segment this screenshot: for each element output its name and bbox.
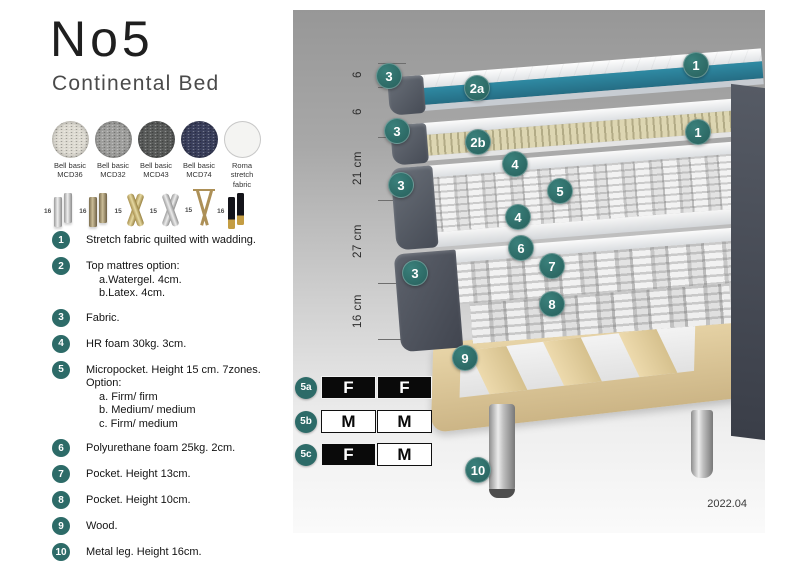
fabric-swatch[interactable]: Bell basicMCD43 [136, 121, 176, 189]
diagram-marker[interactable]: 5 [547, 178, 573, 204]
fabric-swatch-circle[interactable] [181, 121, 218, 158]
fabric-swatch-label: Roma [232, 161, 252, 170]
legend-number-badge: 8 [52, 491, 70, 509]
leg-height-label: 15 [150, 208, 157, 215]
legend-line: b. Medium/ medium [99, 404, 294, 418]
legend-item-8: 8 Pocket. Height 10cm. [52, 491, 294, 509]
legend-item-6: 6 Polyurethane foam 25kg. 2cm. [52, 439, 294, 457]
diagram-marker[interactable]: 3 [388, 172, 414, 198]
legend-number-badge: 4 [52, 335, 70, 353]
firmness-table-5a: 5a F F [295, 376, 432, 399]
leg-height-label: 15 [114, 208, 121, 215]
legend-item-5: 5 Micropocket. Height 15 cm. 7zones. Opt… [52, 361, 294, 432]
diagram-marker[interactable]: 3 [376, 63, 402, 89]
legend-item-1: 1 Stretch fabric quilted with wadding. [52, 231, 294, 249]
legend-line: Polyurethane foam 25kg. 2cm. [86, 442, 235, 456]
legend-line: a. Firm/ firm [99, 391, 294, 405]
page-title: No5 [50, 10, 154, 68]
leg-option[interactable]: 15 [185, 189, 215, 231]
legend-line: Metal leg. Height 16cm. [86, 546, 202, 560]
legend-number-badge: 3 [52, 309, 70, 327]
diagram-marker[interactable]: 4 [505, 204, 531, 230]
fabric-swatch[interactable]: Bell basicMCD36 [50, 121, 90, 189]
leg-option-row: 16 16 15 15 15 16 [44, 189, 250, 231]
leg-option[interactable]: 16 [217, 191, 250, 231]
legend-line: b.Latex. 4cm. [99, 287, 182, 301]
legend-line: c. Firm/ medium [99, 418, 294, 432]
legend-item-9: 9 Wood. [52, 517, 294, 535]
info-panel: No5 Continental Bed Bell basicMCD36 Bell… [0, 0, 293, 533]
fabric-swatch[interactable]: Bell basicMCD32 [93, 121, 133, 189]
fabric-swatch-label: Bell basic [183, 161, 215, 170]
leg-option[interactable]: 16 [79, 191, 112, 231]
leg-height-label: 15 [185, 207, 192, 214]
firmness-table-5b: 5b M M [295, 410, 432, 433]
wood-slat [542, 334, 604, 390]
legend-number-badge: 5 [52, 361, 70, 379]
legend-item-10: 10 Metal leg. Height 16cm. [52, 543, 294, 561]
fabric-swatch-label: Bell basic [140, 161, 172, 170]
diagram-marker[interactable]: 1 [685, 119, 711, 145]
front-metal-leg [489, 404, 515, 498]
diagram-marker[interactable]: 3 [402, 260, 428, 286]
fabric-swatch[interactable]: Bell basicMCD74 [179, 121, 219, 189]
diagram-marker[interactable]: 9 [452, 345, 478, 371]
diagram-marker[interactable]: 6 [508, 235, 534, 261]
page-subtitle: Continental Bed [52, 72, 219, 96]
legend-line: Stretch fabric quilted with wadding. [86, 234, 256, 248]
fabric-swatch-label: Bell basic [54, 161, 86, 170]
firmness-table-badge: 5b [295, 411, 317, 433]
chrome-cylinder-leg-icon [52, 191, 77, 231]
legend-line: Top mattres option: [86, 260, 182, 274]
firmness-table-badge: 5c [295, 444, 317, 466]
legend-number-badge: 10 [52, 543, 70, 561]
firmness-table-badge: 5a [295, 377, 317, 399]
legend-item-3: 3 Fabric. [52, 309, 294, 327]
firmness-cell: F [377, 376, 432, 399]
gold-twist-leg-icon [123, 191, 148, 231]
silver-twist-leg-icon [158, 191, 183, 231]
legend-number-badge: 2 [52, 257, 70, 275]
fabric-swatch-circle[interactable] [224, 121, 261, 158]
fabric-swatch-circle[interactable] [95, 121, 132, 158]
firmness-cell: F [321, 376, 376, 399]
leg-option[interactable]: 15 [114, 191, 147, 231]
fabric-swatch-circle[interactable] [52, 121, 89, 158]
legend-line: Wood. [86, 520, 118, 534]
firmness-cell: M [377, 443, 432, 466]
legend-number-badge: 9 [52, 517, 70, 535]
legend-line: HR foam 30kg. 3cm. [86, 338, 186, 352]
diagram-marker[interactable]: 3 [384, 118, 410, 144]
firmness-table-5c: 5c F M [295, 443, 432, 466]
legend-line: Pocket. Height 13cm. [86, 468, 191, 482]
diagram-marker[interactable]: 7 [539, 253, 565, 279]
diagram-marker[interactable]: 4 [502, 151, 528, 177]
fabric-swatch-circle[interactable] [138, 121, 175, 158]
right-metal-leg [691, 410, 713, 478]
legend-item-4: 4 HR foam 30kg. 3cm. [52, 335, 294, 353]
legend-item-7: 7 Pocket. Height 13cm. [52, 465, 294, 483]
hairpin-leg-icon [193, 189, 215, 231]
firmness-cell: M [377, 410, 432, 433]
legend-number-badge: 7 [52, 465, 70, 483]
diagram-marker[interactable]: 1 [683, 52, 709, 78]
diagram-marker[interactable]: 2b [465, 129, 491, 155]
leg-height-label: 16 [217, 208, 224, 215]
leg-height-label: 16 [79, 208, 86, 215]
legend-item-2: 2 Top mattres option: a.Watergel. 4cm. b… [52, 257, 294, 301]
bronze-cylinder-leg-icon [87, 191, 112, 231]
bed-right-side [731, 84, 765, 440]
diagram-marker[interactable]: 10 [465, 457, 491, 483]
leg-option[interactable]: 16 [44, 191, 77, 231]
diagram-marker[interactable]: 2a [464, 75, 490, 101]
leg-height-label: 16 [44, 208, 51, 215]
black-gold-leg-icon [225, 191, 250, 231]
legend-line: Pocket. Height 10cm. [86, 494, 191, 508]
legend-number-badge: 1 [52, 231, 70, 249]
firmness-cell: F [321, 443, 376, 466]
legend-line: Micropocket. Height 15 cm. 7zones. Optio… [86, 364, 294, 391]
legend-line: a.Watergel. 4cm. [99, 274, 182, 288]
legend-number-badge: 6 [52, 439, 70, 457]
fabric-swatch[interactable]: Romastretch fabric [222, 121, 262, 189]
legend-line: Fabric. [86, 312, 120, 326]
materials-legend: 1 Stretch fabric quilted with wadding. 2… [52, 231, 294, 569]
diagram-marker[interactable]: 8 [539, 291, 565, 317]
version-label: 2022.04 [707, 498, 747, 510]
leg-option[interactable]: 15 [150, 191, 183, 231]
bed-cutaway-diagram: 6 6 21 cm 27 cm 16 cm [293, 10, 765, 533]
firmness-cell: M [321, 410, 376, 433]
fabric-swatch-label: Bell basic [97, 161, 129, 170]
fabric-swatch-row: Bell basicMCD36 Bell basicMCD32 Bell bas… [50, 121, 262, 189]
